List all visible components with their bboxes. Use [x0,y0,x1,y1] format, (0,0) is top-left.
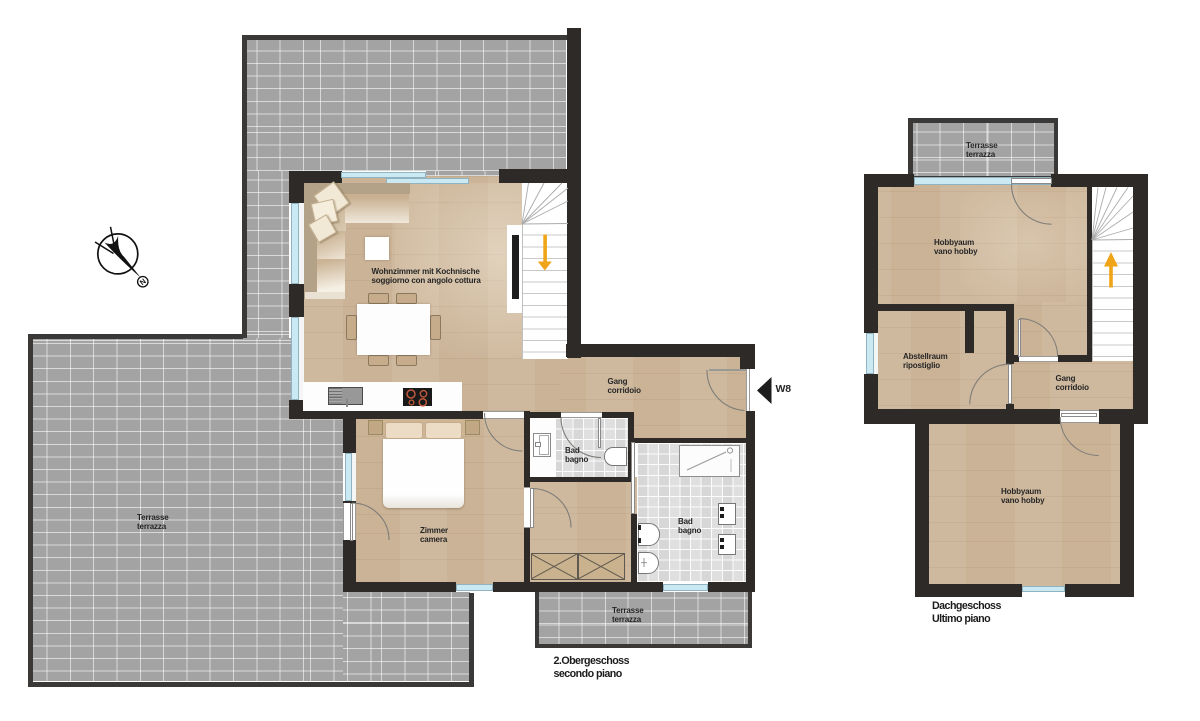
svg-text:N: N [138,277,148,287]
